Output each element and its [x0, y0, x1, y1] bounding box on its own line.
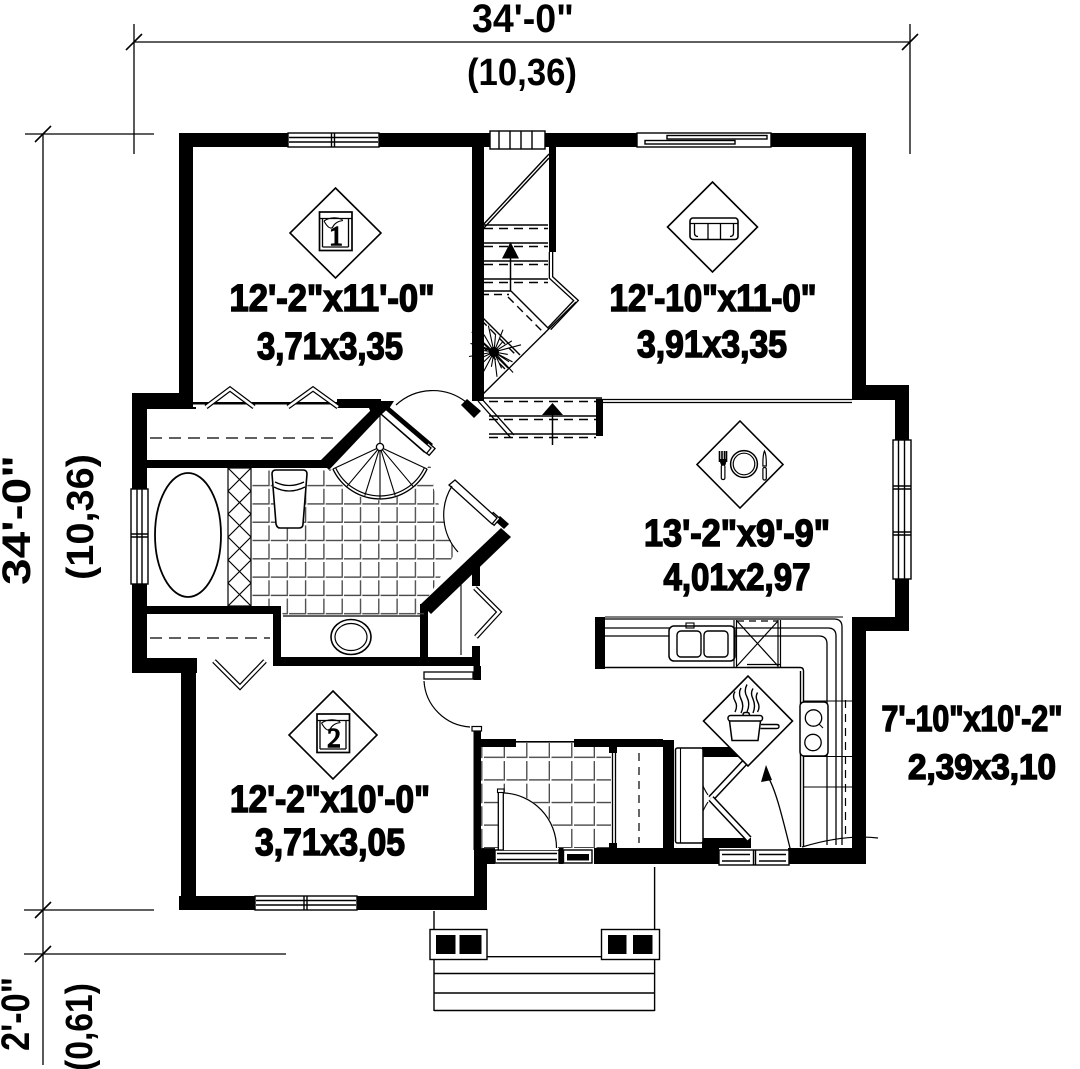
svg-text:34'-0": 34'-0" [0, 455, 39, 585]
svg-text:3,71x3,35: 3,71x3,35 [257, 326, 403, 368]
svg-text:13'-2"x9'-9": 13'-2"x9'-9" [644, 513, 830, 555]
svg-text:34'-0": 34'-0" [472, 0, 574, 41]
svg-text:(10,36): (10,36) [60, 454, 102, 580]
svg-text:12'-10"x11-0": 12'-10"x11-0" [610, 278, 817, 320]
svg-text:(0,61): (0,61) [59, 983, 101, 1069]
svg-text:3,91x3,35: 3,91x3,35 [637, 324, 787, 366]
svg-text:12'-2"x10'-0": 12'-2"x10'-0" [230, 779, 430, 821]
svg-text:2: 2 [327, 723, 341, 753]
svg-text:2,39x3,10: 2,39x3,10 [908, 748, 1056, 787]
svg-text:12'-2"x11'-0": 12'-2"x11'-0" [230, 278, 435, 320]
svg-text:1: 1 [329, 221, 343, 251]
svg-text:7'-10"x10'-2": 7'-10"x10'-2" [882, 698, 1063, 739]
svg-text:2'-0": 2'-0" [0, 977, 38, 1051]
svg-text:4,01x2,97: 4,01x2,97 [664, 557, 811, 599]
svg-text:3,71x3,05: 3,71x3,05 [255, 822, 405, 864]
svg-text:(10,36): (10,36) [467, 52, 577, 94]
